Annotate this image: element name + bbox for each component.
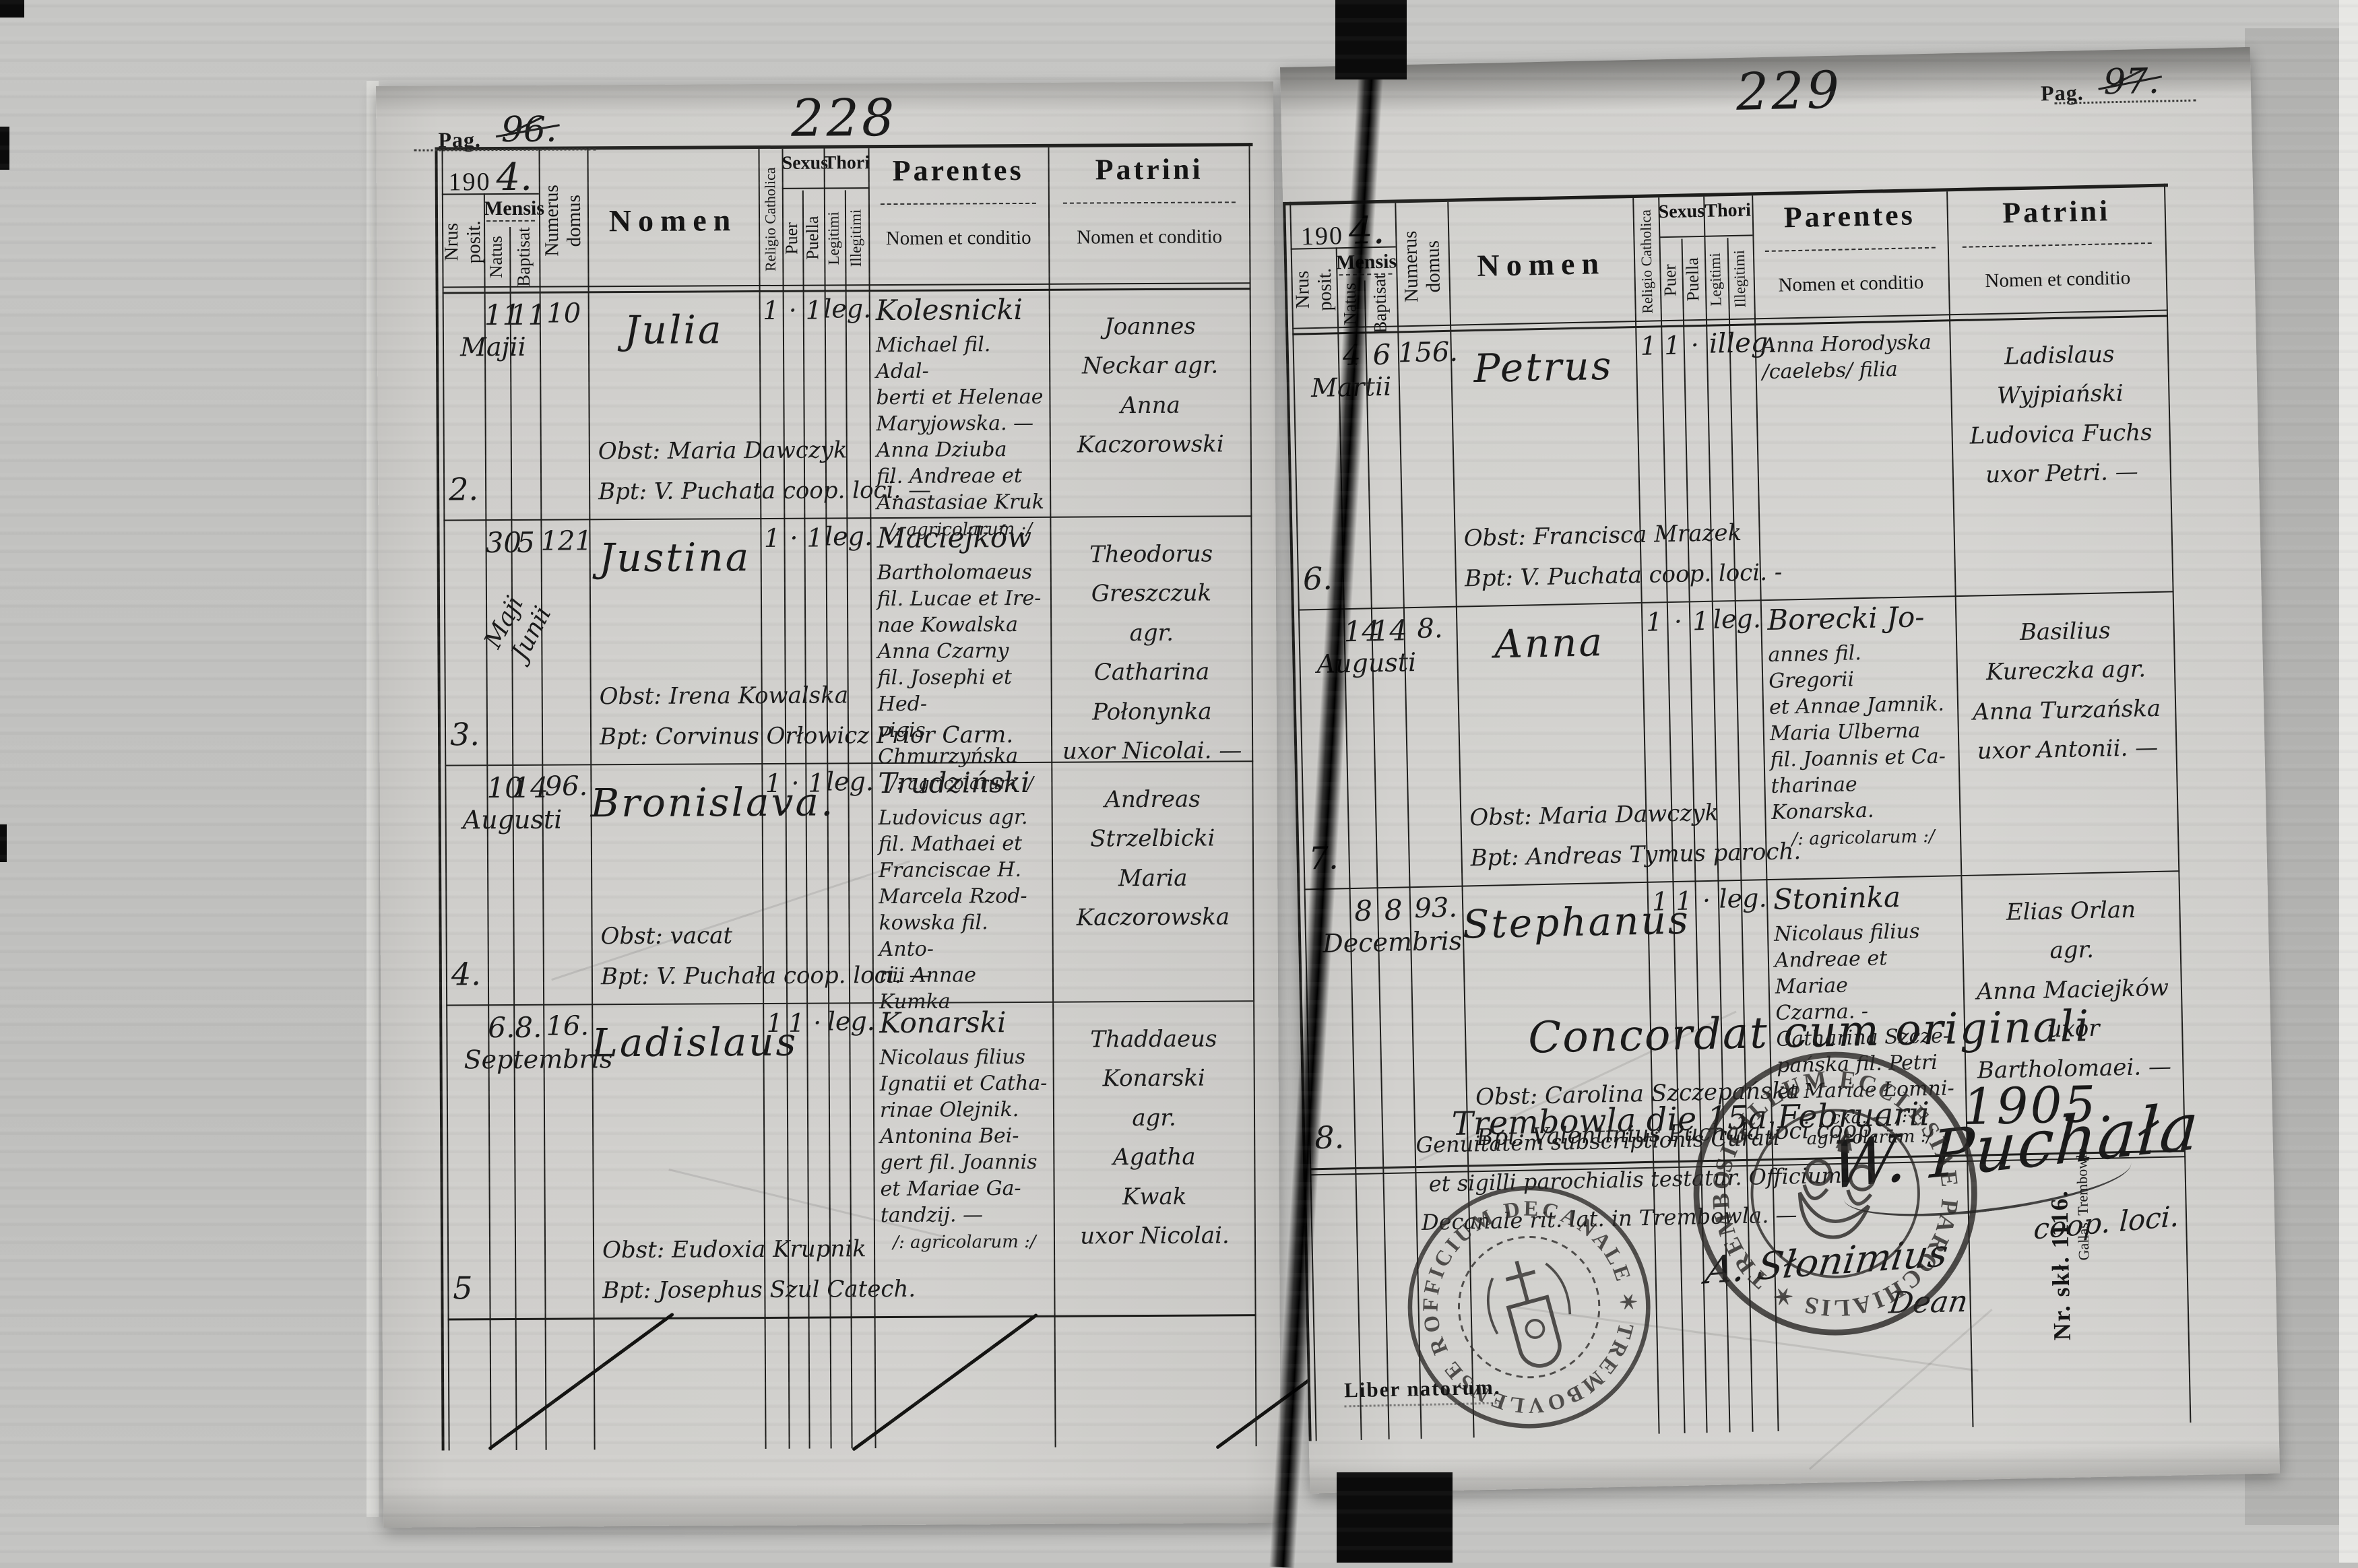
folio-number-229: 229 [1735,60,1843,122]
patrini-dash-rule [1063,201,1236,203]
column-header-thori: Thori [824,152,868,174]
patrini-subheader: Nomen et conditio [1948,266,2168,293]
parents-entry-line: Antonina Bei- [880,1123,1048,1150]
parents-entry: MaciejkówBartholomaeusfil. Lucae et Ire-… [877,521,1046,794]
parents-entry-line: fil. Mathaei et [879,830,1046,857]
parentes-dash-rule [881,203,1036,205]
midwife-note: Obst: Maria Dawczyk [598,436,848,465]
godparents-entry-line: Anna [1054,385,1246,426]
sexus-puella-tick: · [1683,330,1707,360]
godparents-entry-line: Thaddaeus [1058,1019,1249,1059]
thori-legitimate-note: leg. [822,294,873,323]
column-header-patrini: Patrini [1048,152,1250,187]
column-header-numerus-domus: Numerus domus [543,158,584,283]
house-number: 8. [1403,613,1457,645]
column-header-religio-catholica: Religio Catholica [760,153,782,286]
column-header-puella: Puella [1683,240,1703,320]
midwife-note: Obst: Francisca Mrazek [1463,519,1742,552]
folio-number-228: 228 [791,88,897,148]
patrini-subheader: Nomen et conditio [1048,226,1250,249]
parents-entry-line: /: agricolarum :/ [881,1232,1048,1253]
godparents-entry-line: Kaczorowski [1055,425,1246,465]
godparents-entry: BasiliusKureczka agr.Anna Turzańskauxor … [1961,610,2172,772]
parentes-subheader: Nomen et conditio [1754,271,1949,297]
child-name: Petrus [1451,342,1636,392]
pag-dotted-line [414,148,596,151]
column-header-nomen: Nomen [1447,198,1635,330]
parents-entry-line: et Mariae Ga- [880,1175,1048,1202]
parents-entry: Anna Horodyska/caelebs/ filia [1761,323,1945,385]
baptism-day: 14 [512,771,542,804]
parents-entry-line: Nicolaus filius [879,1044,1047,1071]
column-header-nomen: Nomen [587,149,759,291]
parents-entry-line: nae Kowalska [877,612,1045,639]
entry-month: Augusti [463,805,563,835]
parents-entry-line: Konarski [879,1006,1047,1039]
house-number: 10 [540,298,588,329]
baptizer-note: Bpt: Josephus Szul Catech. [602,1276,916,1304]
column-header-parentes: Parentes [1752,197,1947,235]
register-table-left: 1904.Nrus posit.MensisNatusBaptisatNumer… [442,146,1257,1450]
parents-entry-line: /: agricolarum :/ [1772,826,1955,850]
parents-entry-line: /caelebs/ filia [1762,355,1945,385]
parents-entry-line: tharinae Konarska. [1771,769,1954,826]
parents-entry-line: fil. Lucae et Ire- [877,585,1045,612]
table-rule-vertical [1364,280,1390,1439]
house-number: 16. [543,1010,592,1041]
birth-day: 10 [486,771,512,804]
godparents-entry-line: agr. [1058,1098,1250,1138]
parentes-dash-rule [1765,247,1936,252]
religio-tick: 1 [759,296,783,325]
house-number: 156. [1397,337,1451,369]
baptizer-note: Bpt: Andreas Tymus paroch. [1470,838,1801,872]
parents-entry-line: Andreae et Mariae [1775,944,1958,1000]
parents-entry-line: Maria Ulberna [1769,717,1952,747]
register-page-right: 229 Pag. 97. 1904.Nrus posit.MensisNatus… [1280,47,2280,1494]
scan-edge-mark [0,127,9,170]
baptism-day: 5 [511,526,540,559]
table-rule-vertical [868,148,876,1448]
column-header-sexus: Sexus [1658,201,1704,223]
svg-text:SIGILLUM ECCLESIAE PAROCHIALIS: SIGILLUM ECCLESIAE PAROCHIALIS ✶ TREMBOV… [1664,1022,1993,1344]
child-name: Justina [589,534,760,581]
scan-edge-mark [0,824,7,862]
parents-entry-line: Anastasiae Kruk [877,489,1044,516]
religio-tick: 1 [760,523,784,553]
parentes-subheader: Nomen et conditio [868,227,1048,250]
column-header-puella: Puella [804,192,822,285]
entry-month: Decembris [1323,926,1463,958]
child-name: Anna [1456,618,1642,668]
year-printed: 190 [1301,222,1344,251]
thori-legitimate-note: leg. [825,1006,877,1036]
column-header-puer: Puer [1661,240,1680,321]
godparents-entry-line: Greszczuk [1056,574,1247,614]
godparents-entry-line: Konarski [1058,1059,1250,1099]
column-header-sexus: Sexus [782,153,824,174]
parents-entry-line: Stoninka [1773,879,1956,916]
godparents-entry-line: Andreas [1056,779,1248,820]
thori-legitimate-note: leg. [1709,603,1765,634]
godparents-entry-line: Agatha [1058,1138,1250,1178]
column-header-legitimi: Legitimi [1705,239,1725,319]
godparents-entry-line: Neckar agr. [1054,346,1246,387]
birth-day: 11 [484,298,510,331]
birth-day: 6. [488,1011,513,1044]
column-header-puer: Puer [784,192,800,285]
midwife-note: Obst: Irena Kowalska [600,682,849,710]
baptism-day: 14 [1371,614,1404,647]
entry-month: Majii [460,332,526,362]
parents-entry-line: Maryjowska. — [877,410,1044,437]
parents-entry-line: Marcela Rzod- [879,883,1046,910]
godparents-entry-line: uxor Antonii. — [1963,728,2172,772]
parents-entry-line: et Annae Jamnik. [1769,690,1952,721]
godparents-entry-line: Kaczorowska [1057,898,1248,938]
godparents-entry-line: Joannes [1054,306,1246,347]
godparents-entry: LadislausWyjpiańskiLudovica Fuchsuxor Pe… [1955,334,2167,496]
mensis-dash-rule [486,220,535,222]
right-white-strip [2339,0,2358,1563]
house-number: 93. [1409,892,1463,925]
table-rule-horizontal [1704,234,1752,237]
godparents-entry-line: Ladislaus [1955,334,2164,378]
binding-bottom-gap [1337,1472,1453,1563]
sexus-puer-tick: · [783,296,803,325]
parochial-stamp-ring-text: SIGILLUM ECCLESIAE PAROCHIALIS ✶ TREMBOV… [1664,1022,1993,1344]
child-name: Stephanus [1462,898,1648,948]
column-header-numerus-domus: Numerus domus [1399,210,1446,323]
old-page-number-struck: 96. [501,110,557,150]
parents-entry-line: Kolesnicki [876,293,1044,327]
entry-number: 3. [450,716,492,752]
godparents-entry-line: Elias Orlan [1967,889,2175,933]
column-header-mensis: Mensis [484,197,539,220]
column-header-thori: Thori [1703,199,1752,222]
godparents-entry-line: uxor Nicolai. [1059,1216,1250,1257]
thori-legitimate-note: leg. [824,766,875,796]
parents-entry-line: berti et Helenae [876,384,1044,411]
parents-entry-line: Borecki Jo- [1767,599,1950,636]
parents-entry-line: Ignatii et Catha- [880,1070,1048,1097]
birth-day: 30 [485,526,511,559]
table-rule-horizontal [824,187,868,189]
godparents-entry: Elias Orlanagr.Anna Maciejkówuxor Bartho… [1967,889,2179,1090]
column-header-nrus-posit: Nrus posit. [1294,254,1335,325]
parents-entry: KonarskiNicolaus filiusIgnatii et Catha-… [879,1006,1048,1253]
parochial-stamp-emblem [1793,1127,1882,1243]
baptism-day: 11 [510,298,540,331]
godparents-entry-line: Maria [1057,858,1248,899]
parents-entry: TrudzińskiLudovicus agr.fil. Mathaei etF… [878,766,1047,1015]
old-page-number-struck: 97. [2103,61,2160,103]
parents-entry-line: Trudziński [878,766,1046,799]
godparents-entry-line: uxor Nicolai. — [1056,731,1248,772]
baptism-day: 6 [1365,337,1398,371]
parents-entry-line: Ludovicus agr. [879,804,1046,831]
child-name: Julia [588,306,759,353]
godparents-entry: TheodorusGreszczukagr.CatharinaPołonynka… [1056,534,1248,771]
baptism-day: 8 [1377,893,1410,927]
parents-entry: Borecki Jo-annes fil. Gregoriiet Annae J… [1767,599,1955,850]
table-rule-horizontal [1659,236,1704,238]
child-name: Bronislava. [590,779,761,826]
column-header-religio-catholica: Religio Catholica [1634,201,1659,322]
baptism-day: 8. [513,1011,543,1044]
sexus-puer-tick: · [1667,606,1690,636]
year-printed: 190 [448,168,490,196]
godparents-entry-line: Basilius [1961,610,2169,654]
house-number: 96. [542,771,590,802]
godparents-entry-line: Theodorus [1056,534,1247,575]
binding-top-gap [1335,0,1407,79]
column-header-natus: Natus [485,230,507,285]
parents-entry-line: Nicolaus filius [1774,917,1957,948]
entry-number: 2. [449,471,490,507]
column-header-illegitimi: Illegitimi [846,191,866,284]
register-page-left: Pag. 96. 228 1904.Nrus posit.MensisNatus… [376,81,1281,1528]
parents-entry-line: Bartholomaeus [877,559,1045,586]
godparents-entry: AndreasStrzelbickiMariaKaczorowska [1056,779,1248,938]
table-rule-horizontal [782,188,824,189]
godparents-entry-line: Ludovica Fuchs [1956,413,2165,457]
godparents-entry-line: uxor Petri. — [1957,452,2166,496]
godparents-entry-line: Anna Turzańska [1963,688,2171,732]
parents-entry-line: tandzij. — [881,1202,1048,1229]
pag-label: Pag. [438,127,481,152]
godparents-entry-line: agr. [1967,929,2176,973]
parents-entry-line: fil. Andreae et [877,463,1044,490]
parents-entry-line: annes fil. Gregorii [1768,638,1952,694]
scanned-register-spread: Pag. 96. 228 1904.Nrus posit.MensisNatus… [0,0,2358,1563]
column-header-nrus-posit: Nrus posit. [445,200,482,284]
column-header-legitimi: Legitimi [825,191,843,284]
parents-entry-line: Franciscae H. [879,857,1046,884]
parents-entry-line: fil. Joannis et Ca- [1770,743,1953,773]
sexus-puer-tick: · [784,523,804,553]
patrini-dash-rule [1963,242,2152,248]
parents-entry-line: Anna Czarny [877,638,1045,665]
left-page-number-block: Pag. 96. [438,115,596,156]
parents-entry: KolesnickiMichael fil. Adal-berti et Hel… [876,293,1045,540]
godparents-entry-line: Kureczka agr. [1961,649,2170,693]
parents-entry-line: vigis Chmurzyńska [878,717,1046,770]
book-label-liber-natorum: Liber natorum. [1344,1375,1501,1408]
godparents-entry-line: Wyjpiański [1956,373,2165,417]
column-header-parentes: Parentes [868,153,1048,188]
entry-month: Septembris [464,1044,612,1074]
parents-entry-line: Anna Dziuba [877,436,1044,463]
parents-entry-line: rinae Olejnik. [880,1097,1048,1123]
thori-legitimate-note: leg. [823,521,874,551]
parents-entry-line: kowska fil. Anto- [879,909,1046,962]
column-header-illegitimi: Illegitimi [1728,238,1751,319]
parents-entry-line: Michael fil. Adal- [876,331,1044,385]
parents-entry-line: Anna Horodyska [1761,329,1944,359]
entry-number: 5 [453,1270,495,1306]
scan-corner-mark [0,0,24,18]
column-header-baptisat: Baptisat [511,230,536,285]
godparents-entry-line: agr. [1056,613,1247,653]
table-rule-vertical [509,227,517,1450]
house-number: 121 [540,525,589,556]
godparents-entry-line: Kwak [1058,1177,1250,1217]
godparents-entry-line: Połonynka [1056,692,1248,732]
parents-entry-line: fil. Josephi et Hed- [878,664,1046,717]
thori-legitimate-note: leg. [1715,883,1771,914]
cancellation-slash [852,1313,1038,1451]
midwife-note: Obst: Maria Dawczyk [1469,799,1719,832]
godparents-entry: ThaddaeusKonarskiagr.AgathaKwakuxor Nico… [1058,1019,1250,1256]
godparents-entry-line: Catharina [1056,653,1247,693]
column-header-patrini: Patrini [1946,193,2166,232]
entry-number: 4. [451,956,493,992]
table-rule-vertical [2164,184,2192,1423]
religio-tick: 1 [1635,331,1661,361]
entry-number: 8. [1314,1119,1360,1156]
sexus-puer-tick: 1 [1661,331,1684,361]
midwife-note: Obst: Eudoxia Krupnik [602,1235,866,1264]
godparents-entry-line: Strzelbicki [1057,819,1248,859]
right-page-number-block: Pag. 97. [2040,66,2196,110]
birth-day: 8 [1349,894,1378,927]
parochial-church-stamp: SIGILLUM ECCLESIAE PAROCHIALIS ✶ TREMBOV… [1664,1022,2006,1365]
parents-entry-line: Maciejków [877,521,1044,554]
godparents-entry: JoannesNeckar agr.AnnaKaczorowski [1054,306,1246,465]
religio-tick: 1 [1641,607,1667,637]
parents-entry-line: gert fil. Joannis [880,1149,1048,1176]
child-name: Ladislaus [592,1019,763,1066]
